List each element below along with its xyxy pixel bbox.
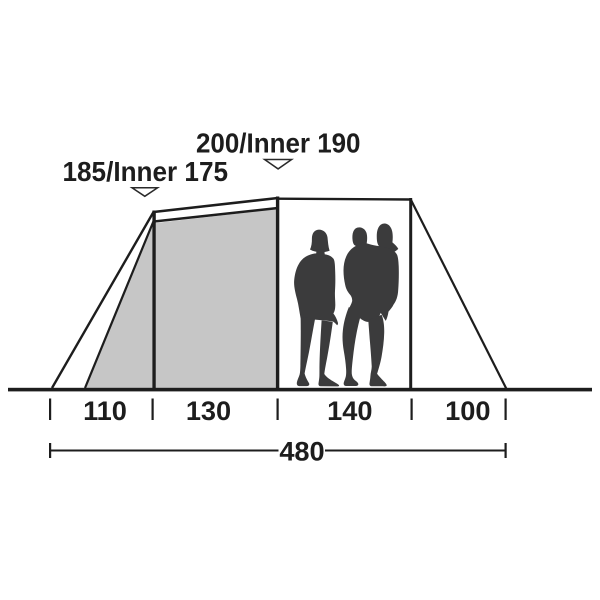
svg-text:200/Inner 190: 200/Inner 190: [196, 128, 361, 159]
svg-text:130: 130: [186, 395, 231, 426]
svg-text:185/Inner 175: 185/Inner 175: [63, 156, 229, 187]
svg-text:110: 110: [83, 395, 127, 426]
svg-text:140: 140: [327, 395, 372, 426]
svg-text:480: 480: [279, 435, 324, 466]
svg-text:100: 100: [445, 395, 490, 426]
